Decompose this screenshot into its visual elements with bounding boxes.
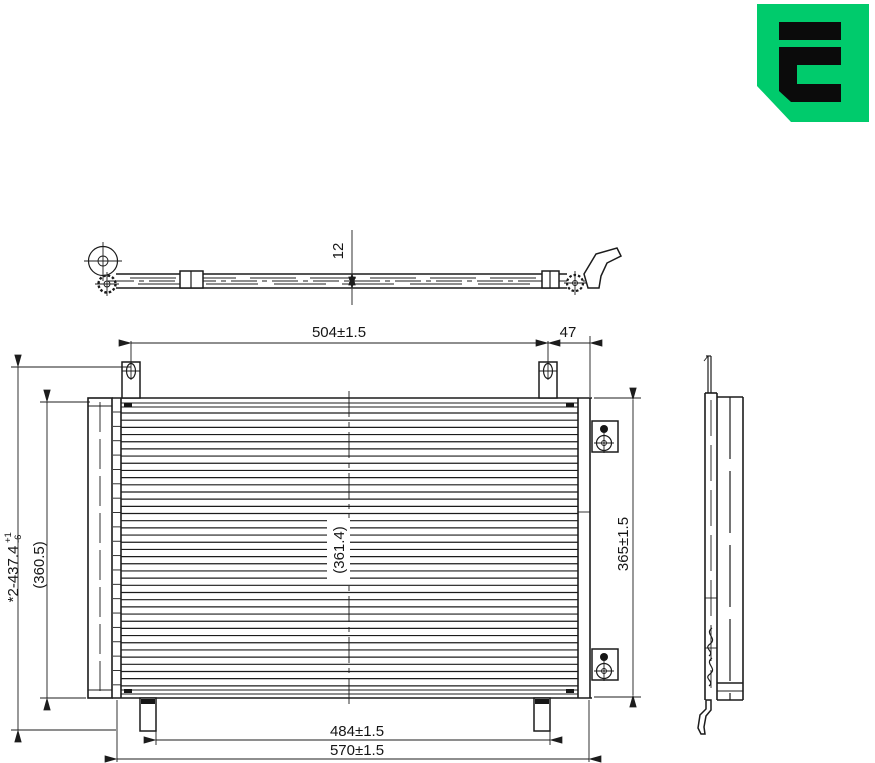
drier-clamp-mark-upper [708,628,713,656]
dim-thickness: 12 [330,230,352,305]
front-view: (361.4) 504±1.5 47 *2-437.4 +1 -6 [3,324,641,762]
port-fitting-top [592,421,618,453]
logo-e-glyph-icon [779,22,841,102]
dim-overall-height-label: *2-437.4 [5,546,22,603]
dim-core-height-ref-label: (361.4) [331,526,348,574]
drier-clamp-mark-lower [708,658,713,686]
drawing-canvas: 12 [0,0,875,763]
end-bracket [584,248,621,288]
side-bottom-hook [698,700,711,734]
brand-logo [757,4,869,122]
dim-peg-span-label: 484±1.5 [330,723,384,740]
top-view: 12 [84,230,621,305]
port-fitting-bottom [592,649,618,681]
dim-core-height-label: (360.5) [31,541,48,589]
dim-overall-width-label: 570±1.5 [330,742,384,759]
mounting-tab-left [122,341,140,398]
dim-tab-span: 504±1.5 [131,324,548,343]
side-view [698,356,743,734]
receiver-drier [88,398,112,698]
dim-thickness-label: 12 [330,243,347,260]
dim-core-height-ref: (361.4) [327,518,350,582]
dim-height-right-label: 365±1.5 [615,517,632,571]
condenser-core [112,391,592,706]
dim-overall-height-tol-lower: -6 [13,535,24,543]
bottom-peg-left [140,698,156,731]
dim-tab-span-label: 504±1.5 [312,324,366,341]
technical-drawing-page: 12 [0,0,875,763]
dim-tab-to-edge-label: 47 [560,324,577,341]
dim-peg-span: 484±1.5 [156,700,550,745]
mounting-tab-right [539,341,557,398]
dim-core-height: (360.5) [31,402,90,698]
header-ticks [113,412,121,685]
bottom-peg-right [534,698,550,731]
